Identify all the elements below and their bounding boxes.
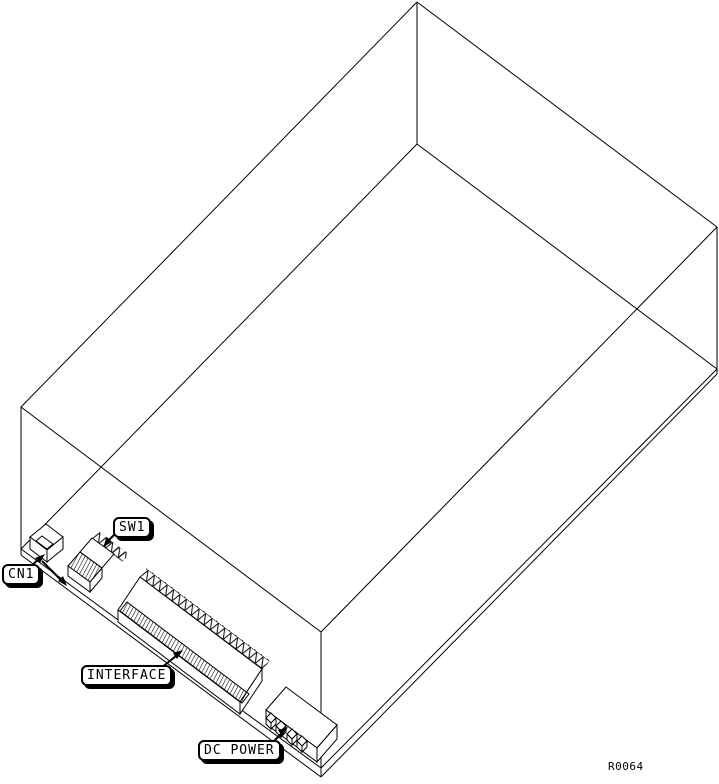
cn1-connector	[30, 524, 63, 562]
sw1-switch-block	[68, 531, 129, 592]
callout-cn1: CN1	[2, 564, 40, 585]
callout-dc-power: DC POWER	[198, 740, 281, 761]
figure-canvas: CN1 SW1 INTERFACE DC POWER R0064	[0, 0, 719, 784]
callout-interface: INTERFACE	[81, 665, 172, 686]
drawing-ref: R0064	[608, 760, 644, 773]
callout-sw1: SW1	[113, 517, 151, 538]
chassis-wireframe	[21, 2, 717, 777]
interface-connector	[118, 568, 270, 714]
